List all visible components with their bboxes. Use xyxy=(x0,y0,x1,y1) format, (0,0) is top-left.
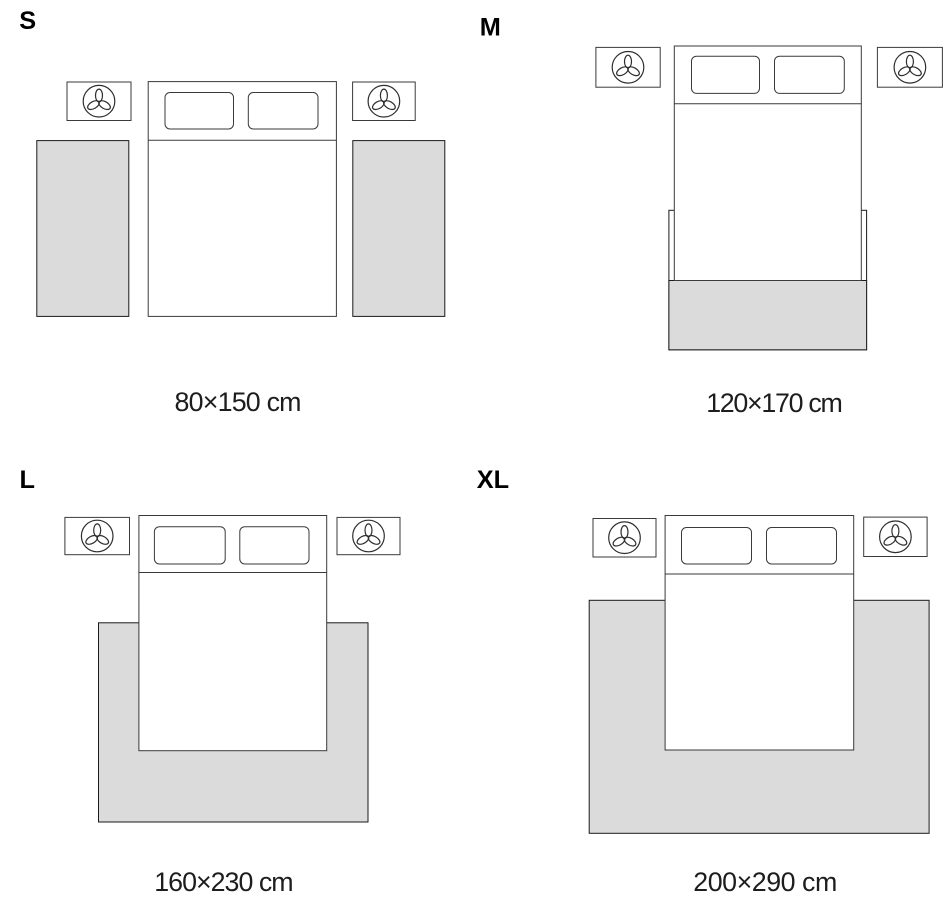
svg-text:M: M xyxy=(480,13,501,41)
svg-text:160×230 cm: 160×230 cm xyxy=(154,867,293,897)
svg-text:80×150 cm: 80×150 cm xyxy=(175,387,302,417)
svg-text:XL: XL xyxy=(477,466,509,494)
svg-text:S: S xyxy=(19,7,36,35)
svg-text:120×170 cm: 120×170 cm xyxy=(706,388,843,418)
svg-text:L: L xyxy=(20,466,35,494)
svg-text:200×290 cm: 200×290 cm xyxy=(693,867,837,897)
